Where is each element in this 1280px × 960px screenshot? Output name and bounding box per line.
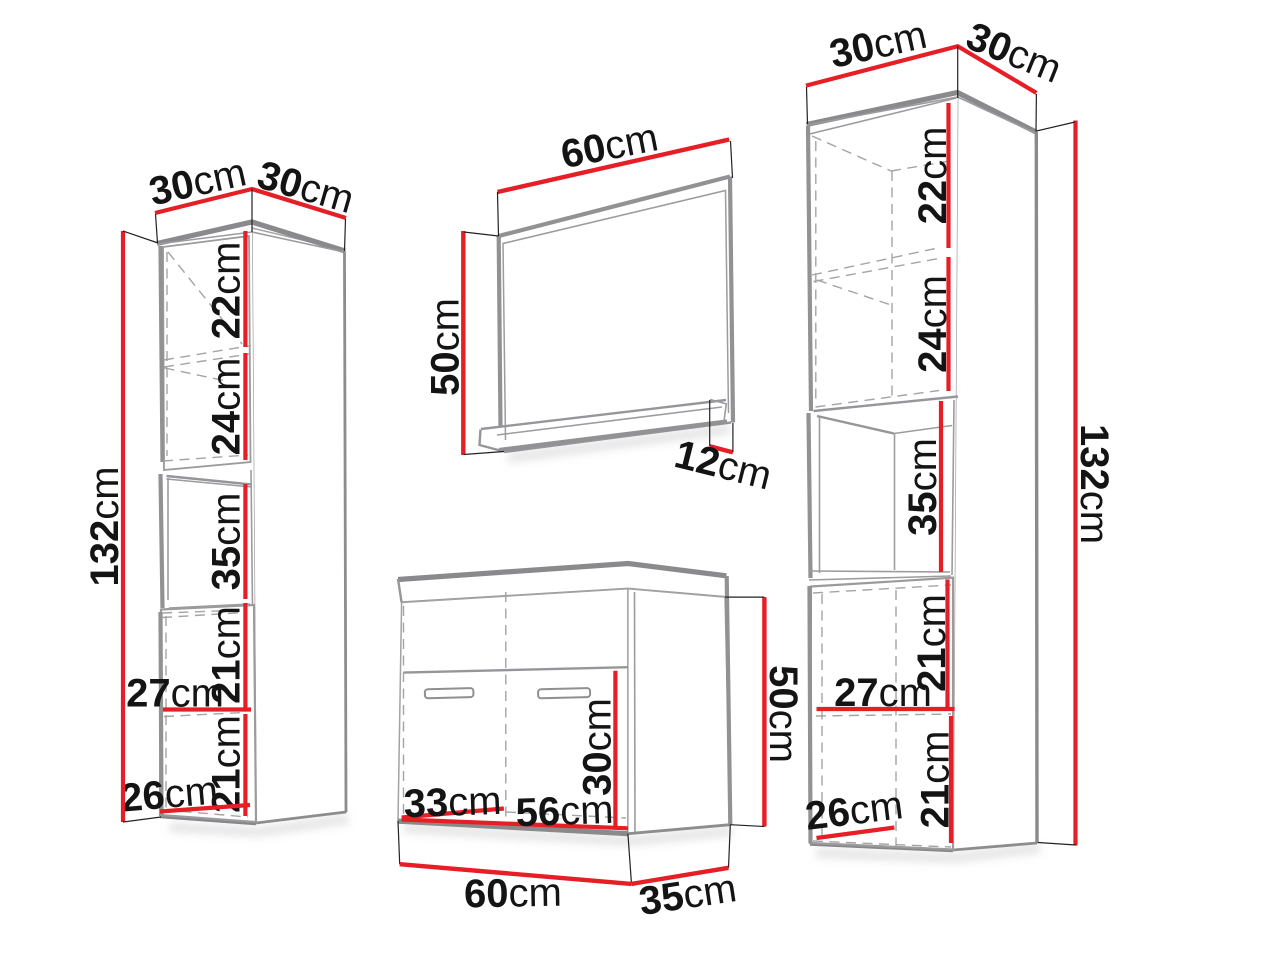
svg-text:24cm: 24cm [911, 275, 955, 373]
svg-text:50cm: 50cm [424, 298, 468, 396]
svg-text:60cm: 60cm [557, 115, 661, 177]
svg-text:24cm: 24cm [205, 358, 249, 456]
svg-text:132cm: 132cm [1072, 424, 1116, 544]
svg-text:50cm: 50cm [761, 665, 805, 763]
svg-text:27cm: 27cm [126, 672, 224, 716]
svg-text:21cm: 21cm [914, 731, 958, 829]
svg-text:35cm: 35cm [205, 493, 249, 591]
svg-text:35cm: 35cm [901, 438, 945, 536]
svg-text:30cm: 30cm [826, 13, 931, 77]
svg-text:22cm: 22cm [205, 242, 249, 340]
svg-text:132cm: 132cm [83, 466, 127, 586]
svg-text:60cm: 60cm [464, 871, 563, 917]
svg-text:30cm: 30cm [145, 150, 250, 214]
svg-text:56cm: 56cm [515, 788, 614, 835]
svg-text:30cm: 30cm [576, 698, 620, 796]
svg-text:22cm: 22cm [911, 127, 955, 225]
svg-text:35cm: 35cm [636, 866, 739, 924]
svg-text:30cm: 30cm [253, 153, 359, 222]
svg-text:12cm: 12cm [670, 432, 776, 498]
svg-text:27cm: 27cm [834, 671, 932, 715]
svg-text:26cm: 26cm [118, 768, 219, 820]
